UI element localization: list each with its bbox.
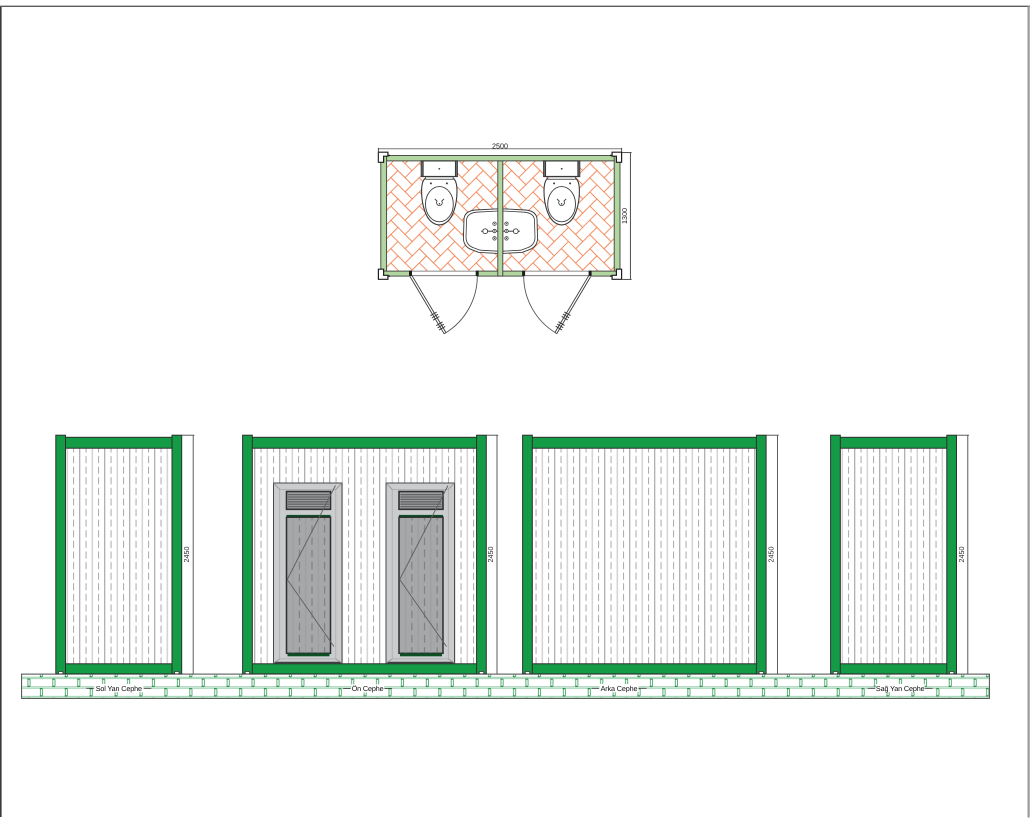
svg-text:2450: 2450 — [486, 547, 495, 563]
svg-text:Ön Cephe: Ön Cephe — [352, 684, 384, 693]
svg-text:2500: 2500 — [492, 141, 508, 150]
svg-text:Arka Cephe: Arka Cephe — [601, 684, 638, 693]
svg-text:2450: 2450 — [182, 547, 191, 563]
svg-text:1300: 1300 — [620, 208, 629, 224]
svg-text:Sağ Yan Cephe: Sağ Yan Cephe — [876, 684, 925, 693]
svg-text:Sol Yan Cephe: Sol Yan Cephe — [96, 684, 142, 693]
svg-text:2450: 2450 — [957, 547, 966, 563]
svg-text:2450: 2450 — [767, 547, 776, 563]
